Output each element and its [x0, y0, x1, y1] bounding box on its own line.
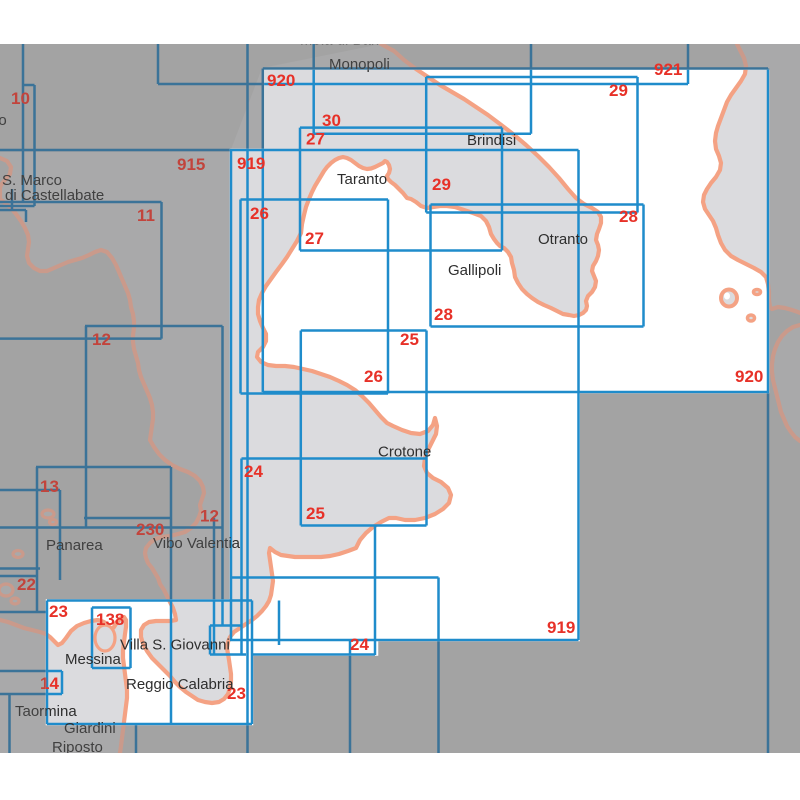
svg-text:921: 921: [654, 60, 682, 79]
